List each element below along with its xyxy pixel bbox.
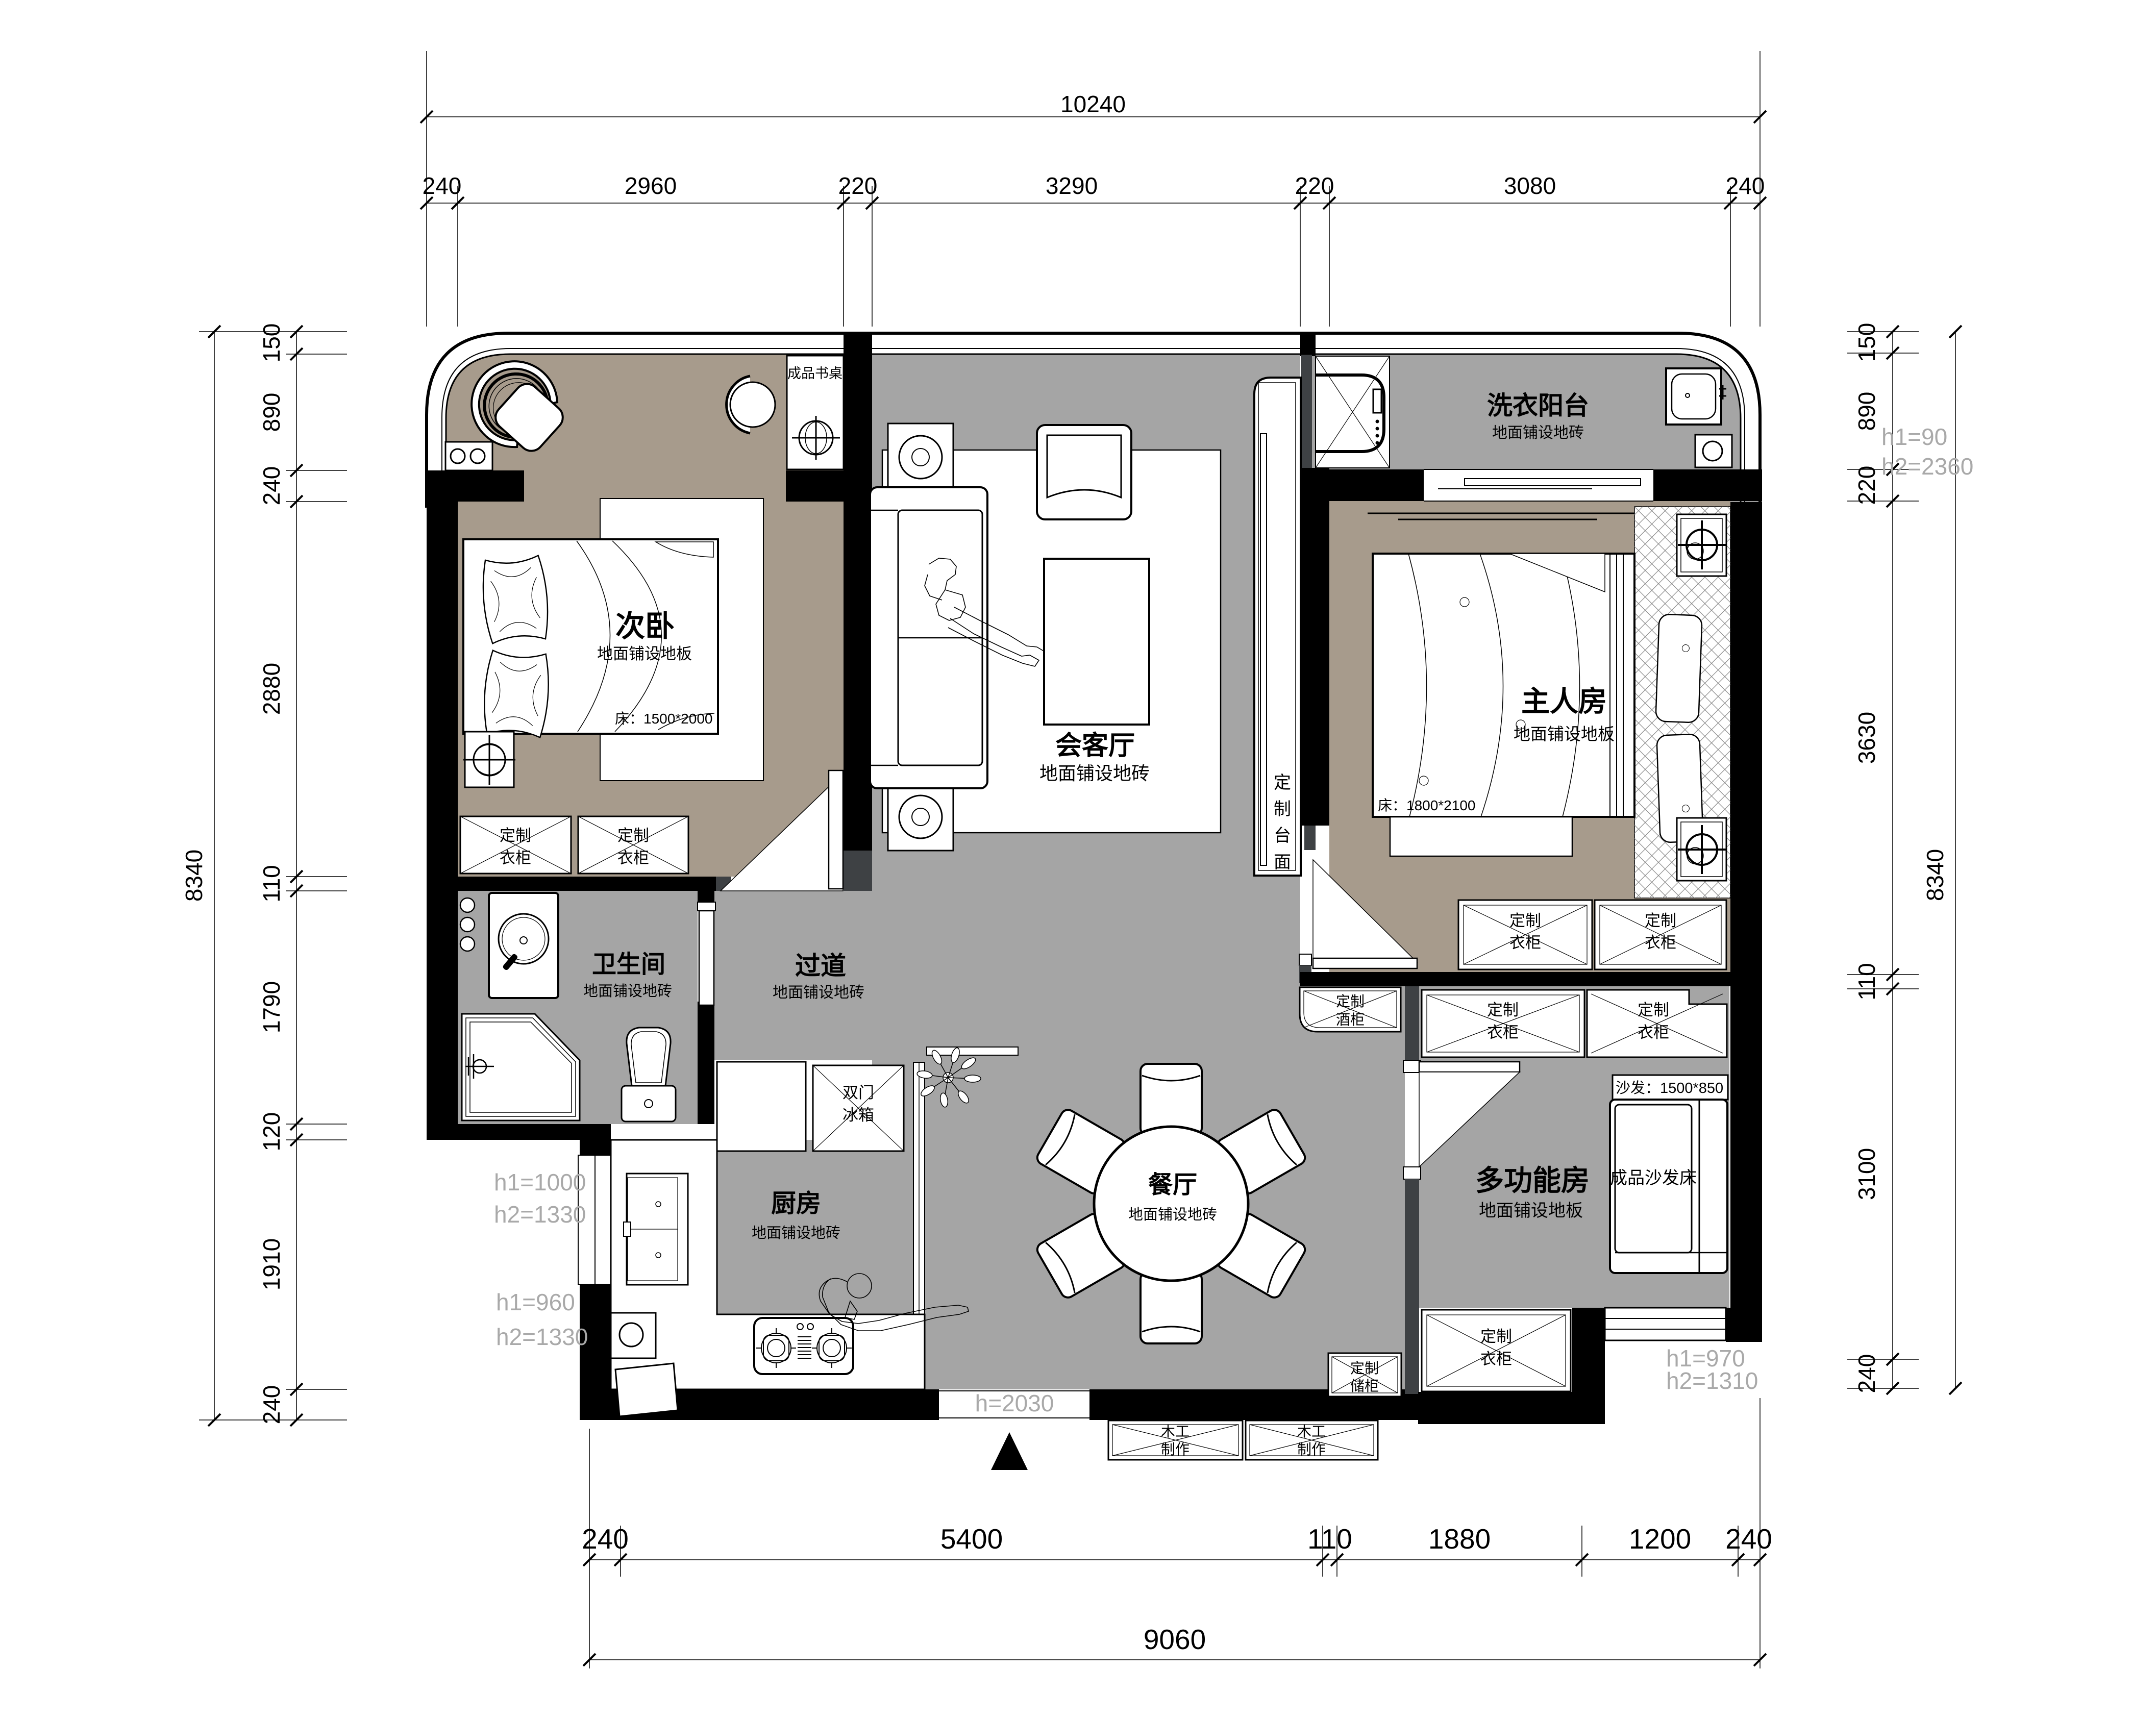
svg-text:多功能房: 多功能房 <box>1475 1164 1590 1196</box>
svg-text:120: 120 <box>258 1112 285 1152</box>
svg-text:卫生间: 卫生间 <box>592 951 665 978</box>
svg-text:h2=2360: h2=2360 <box>1881 453 1973 480</box>
svg-text:次卧: 次卧 <box>615 610 675 643</box>
svg-text:h=2030: h=2030 <box>975 1390 1054 1416</box>
svg-text:890: 890 <box>1853 392 1880 431</box>
svg-text:餐厅: 餐厅 <box>1148 1171 1197 1199</box>
svg-text:衣柜: 衣柜 <box>1480 1350 1512 1368</box>
svg-text:成品书桌: 成品书桌 <box>787 366 842 381</box>
svg-text:双门: 双门 <box>842 1084 874 1102</box>
svg-text:1910: 1910 <box>258 1238 285 1290</box>
svg-text:过道: 过道 <box>795 952 846 980</box>
svg-text:地面铺设地砖: 地面铺设地砖 <box>1039 763 1150 784</box>
svg-text:240: 240 <box>258 466 285 506</box>
svg-text:220: 220 <box>1853 466 1880 505</box>
svg-text:主人房: 主人房 <box>1521 685 1607 717</box>
svg-text:会客厅: 会客厅 <box>1055 731 1135 761</box>
svg-text:5400: 5400 <box>940 1523 1003 1555</box>
svg-text:衣柜: 衣柜 <box>1645 934 1676 952</box>
svg-text:地面铺设地板: 地面铺设地板 <box>1514 725 1615 743</box>
svg-text:3100: 3100 <box>1853 1148 1880 1200</box>
svg-text:h2=1330: h2=1330 <box>496 1324 588 1350</box>
svg-text:定制: 定制 <box>1350 1360 1379 1376</box>
svg-text:定制: 定制 <box>1487 1001 1519 1019</box>
svg-text:240: 240 <box>1853 1354 1880 1393</box>
svg-text:制作: 制作 <box>1297 1441 1326 1457</box>
svg-text:床：1800*2100: 床：1800*2100 <box>1378 797 1475 813</box>
svg-text:定制: 定制 <box>1638 1001 1669 1019</box>
svg-text:h1=960: h1=960 <box>496 1289 575 1315</box>
svg-text:9060: 9060 <box>1144 1624 1206 1655</box>
svg-text:890: 890 <box>258 393 285 432</box>
svg-text:厨房: 厨房 <box>771 1190 821 1217</box>
svg-text:成品沙发床: 成品沙发床 <box>1610 1168 1697 1188</box>
svg-text:240: 240 <box>1725 1523 1772 1555</box>
svg-text:衣柜: 衣柜 <box>500 849 531 867</box>
svg-text:h1=90: h1=90 <box>1881 423 1947 450</box>
svg-text:2880: 2880 <box>258 663 285 715</box>
svg-text:8340: 8340 <box>181 850 207 902</box>
svg-text:定: 定 <box>1274 773 1291 792</box>
svg-text:地面铺设地砖: 地面铺设地砖 <box>773 984 864 1001</box>
svg-text:台: 台 <box>1274 826 1291 845</box>
svg-text:面: 面 <box>1274 853 1291 872</box>
svg-text:制: 制 <box>1274 800 1291 819</box>
svg-text:1880: 1880 <box>1428 1523 1491 1555</box>
svg-text:110: 110 <box>258 865 285 902</box>
svg-text:衣柜: 衣柜 <box>1487 1024 1519 1041</box>
svg-text:110: 110 <box>1307 1523 1352 1555</box>
svg-text:地面铺设地砖: 地面铺设地砖 <box>752 1225 840 1241</box>
svg-text:240: 240 <box>423 172 462 199</box>
svg-text:1200: 1200 <box>1629 1523 1691 1555</box>
svg-text:沙发：1500*850: 沙发：1500*850 <box>1616 1080 1723 1096</box>
svg-text:240: 240 <box>258 1385 285 1425</box>
svg-text:10240: 10240 <box>1060 91 1126 117</box>
svg-text:冰箱: 冰箱 <box>842 1106 874 1124</box>
svg-text:定制: 定制 <box>500 827 531 844</box>
svg-text:储柜: 储柜 <box>1350 1378 1379 1394</box>
svg-text:150: 150 <box>1853 323 1880 362</box>
svg-text:定制: 定制 <box>617 827 649 844</box>
svg-text:木工: 木工 <box>1161 1424 1189 1439</box>
svg-text:110: 110 <box>1853 963 1880 1000</box>
svg-text:定制: 定制 <box>1645 912 1676 930</box>
svg-text:制作: 制作 <box>1161 1441 1189 1457</box>
svg-text:1790: 1790 <box>258 981 285 1033</box>
svg-text:地面铺设地板: 地面铺设地板 <box>1479 1201 1583 1220</box>
svg-text:220: 220 <box>1295 172 1334 199</box>
svg-text:地面铺设地砖: 地面铺设地砖 <box>1492 425 1584 441</box>
svg-text:2960: 2960 <box>625 172 677 199</box>
svg-text:3080: 3080 <box>1504 172 1556 199</box>
svg-text:定制: 定制 <box>1480 1328 1512 1345</box>
svg-text:定制: 定制 <box>1509 912 1541 930</box>
svg-text:220: 220 <box>838 172 878 199</box>
svg-text:衣柜: 衣柜 <box>1509 934 1541 952</box>
svg-text:8340: 8340 <box>1922 849 1948 901</box>
svg-text:木工: 木工 <box>1297 1424 1326 1439</box>
svg-text:h1=1000: h1=1000 <box>494 1169 586 1195</box>
svg-text:240: 240 <box>1726 172 1765 199</box>
svg-text:定制: 定制 <box>1336 993 1365 1009</box>
svg-text:地面铺设地板: 地面铺设地板 <box>597 645 692 663</box>
svg-text:地面铺设地砖: 地面铺设地砖 <box>583 983 672 1000</box>
svg-text:地面铺设地砖: 地面铺设地砖 <box>1128 1206 1217 1223</box>
svg-text:150: 150 <box>258 323 285 363</box>
svg-text:240: 240 <box>582 1523 629 1555</box>
svg-text:洗衣阳台: 洗衣阳台 <box>1487 391 1589 420</box>
svg-text:床：1500*2000: 床：1500*2000 <box>615 711 712 727</box>
svg-text:酒柜: 酒柜 <box>1336 1012 1365 1028</box>
svg-text:衣柜: 衣柜 <box>617 849 649 867</box>
svg-text:h2=1310: h2=1310 <box>1666 1367 1758 1394</box>
svg-text:衣柜: 衣柜 <box>1638 1024 1669 1041</box>
svg-text:3630: 3630 <box>1853 712 1880 764</box>
svg-text:h2=1330: h2=1330 <box>494 1201 586 1228</box>
svg-text:3290: 3290 <box>1046 172 1098 199</box>
